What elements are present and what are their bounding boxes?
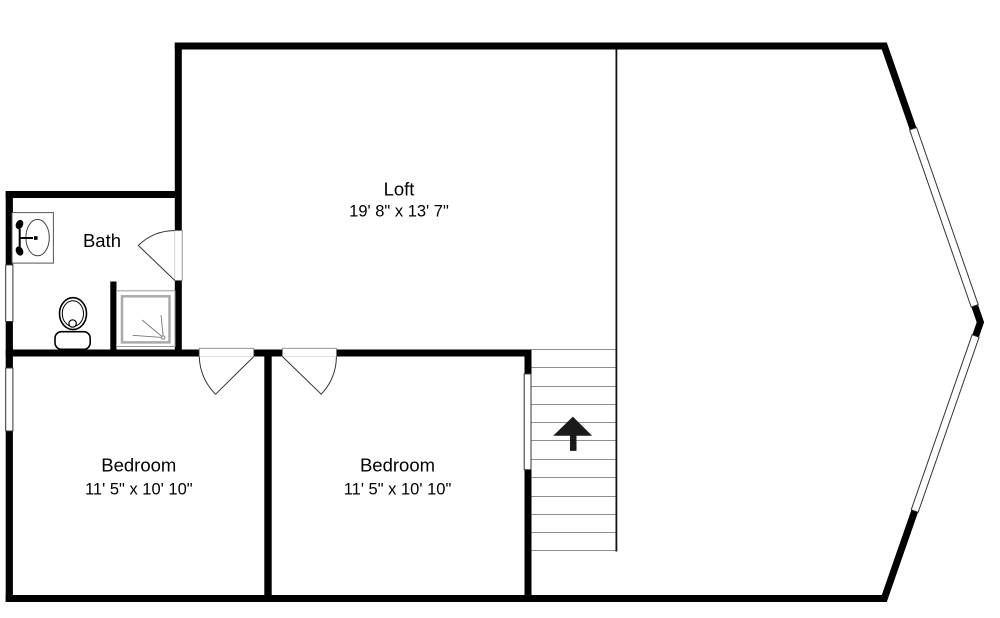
svg-text:Bath: Bath bbox=[83, 230, 121, 251]
svg-text:11' 5" x 10' 10": 11' 5" x 10' 10" bbox=[85, 481, 193, 499]
svg-text:Bedroom: Bedroom bbox=[360, 455, 435, 476]
svg-text:Bedroom: Bedroom bbox=[101, 455, 176, 476]
svg-text:19' 8" x 13' 7": 19' 8" x 13' 7" bbox=[349, 203, 449, 221]
svg-text:Loft: Loft bbox=[384, 179, 415, 200]
svg-text:11' 5" x 10' 10": 11' 5" x 10' 10" bbox=[344, 481, 452, 499]
